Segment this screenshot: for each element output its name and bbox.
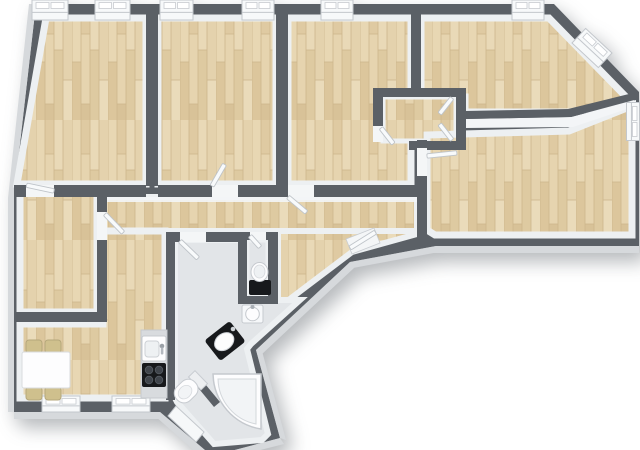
threshold-room-c [288,185,314,197]
dining-chair-4 [45,387,61,400]
window-room-a-1 [32,0,68,20]
bathroom-wall-top-1 [166,232,180,242]
vanity-faucet [231,327,236,332]
threshold-room-b [212,185,238,197]
vestibule-wall-right [456,88,466,150]
threshold-bathroom [180,232,206,242]
cooktop-burner-2 [155,366,163,374]
middle-left-wall-upper [97,192,107,212]
dining-chair-2 [45,340,61,353]
dining-chair-1 [26,340,42,353]
wall-b-c [276,10,288,186]
wc-toilet-seat [254,265,265,278]
hallway-floor [103,197,417,231]
hallway-wall-seg-5 [314,185,421,197]
wall-c-d [411,10,421,90]
building-group [8,0,640,450]
wall-sink-faucet [251,305,255,309]
wc-toilet-tank [249,280,271,295]
wc-wall-left [238,232,247,304]
dining-chair-3 [26,387,42,400]
cooktop-burner-1 [145,366,153,374]
cooktop [142,363,166,387]
wc-wall-top-1 [238,232,250,240]
floor-plan-stage [0,0,640,450]
window-room-b-2 [242,0,274,20]
floor-plan [0,0,640,450]
kitchen-faucet-spout [161,348,164,355]
hallway-wall-seg-1 [14,185,26,197]
cooktop-burner-4 [155,376,163,384]
room-b-floor [158,18,276,184]
vestibule-wall-left [373,88,383,126]
dining-table [22,352,70,388]
dining-wall-top [14,312,107,322]
middle-left-room-floor [20,192,97,312]
wall-sink-basin [246,307,260,321]
threshold-living [417,148,427,176]
window-right-wall [627,103,640,141]
window-room-a-2 [95,0,130,20]
window-room-d [512,0,544,20]
window-room-c [321,0,353,20]
outer-face-kitchen [14,412,163,419]
hallway-wall-seg-4 [238,185,288,197]
cooktop-burner-3 [145,376,153,384]
wc-wall-bottom [238,296,278,304]
middle-left-wall-lower [97,240,107,318]
kitchen-sink-basin [145,341,159,357]
living-wall-left-stub [417,140,427,148]
hallway-wall-seg-3 [158,185,212,197]
window-room-b-1 [160,0,193,20]
wall-face-hallway [103,197,417,202]
wall-a-b [146,10,158,186]
vestibule-wall-top [373,88,466,97]
outer-face-living [433,246,639,253]
